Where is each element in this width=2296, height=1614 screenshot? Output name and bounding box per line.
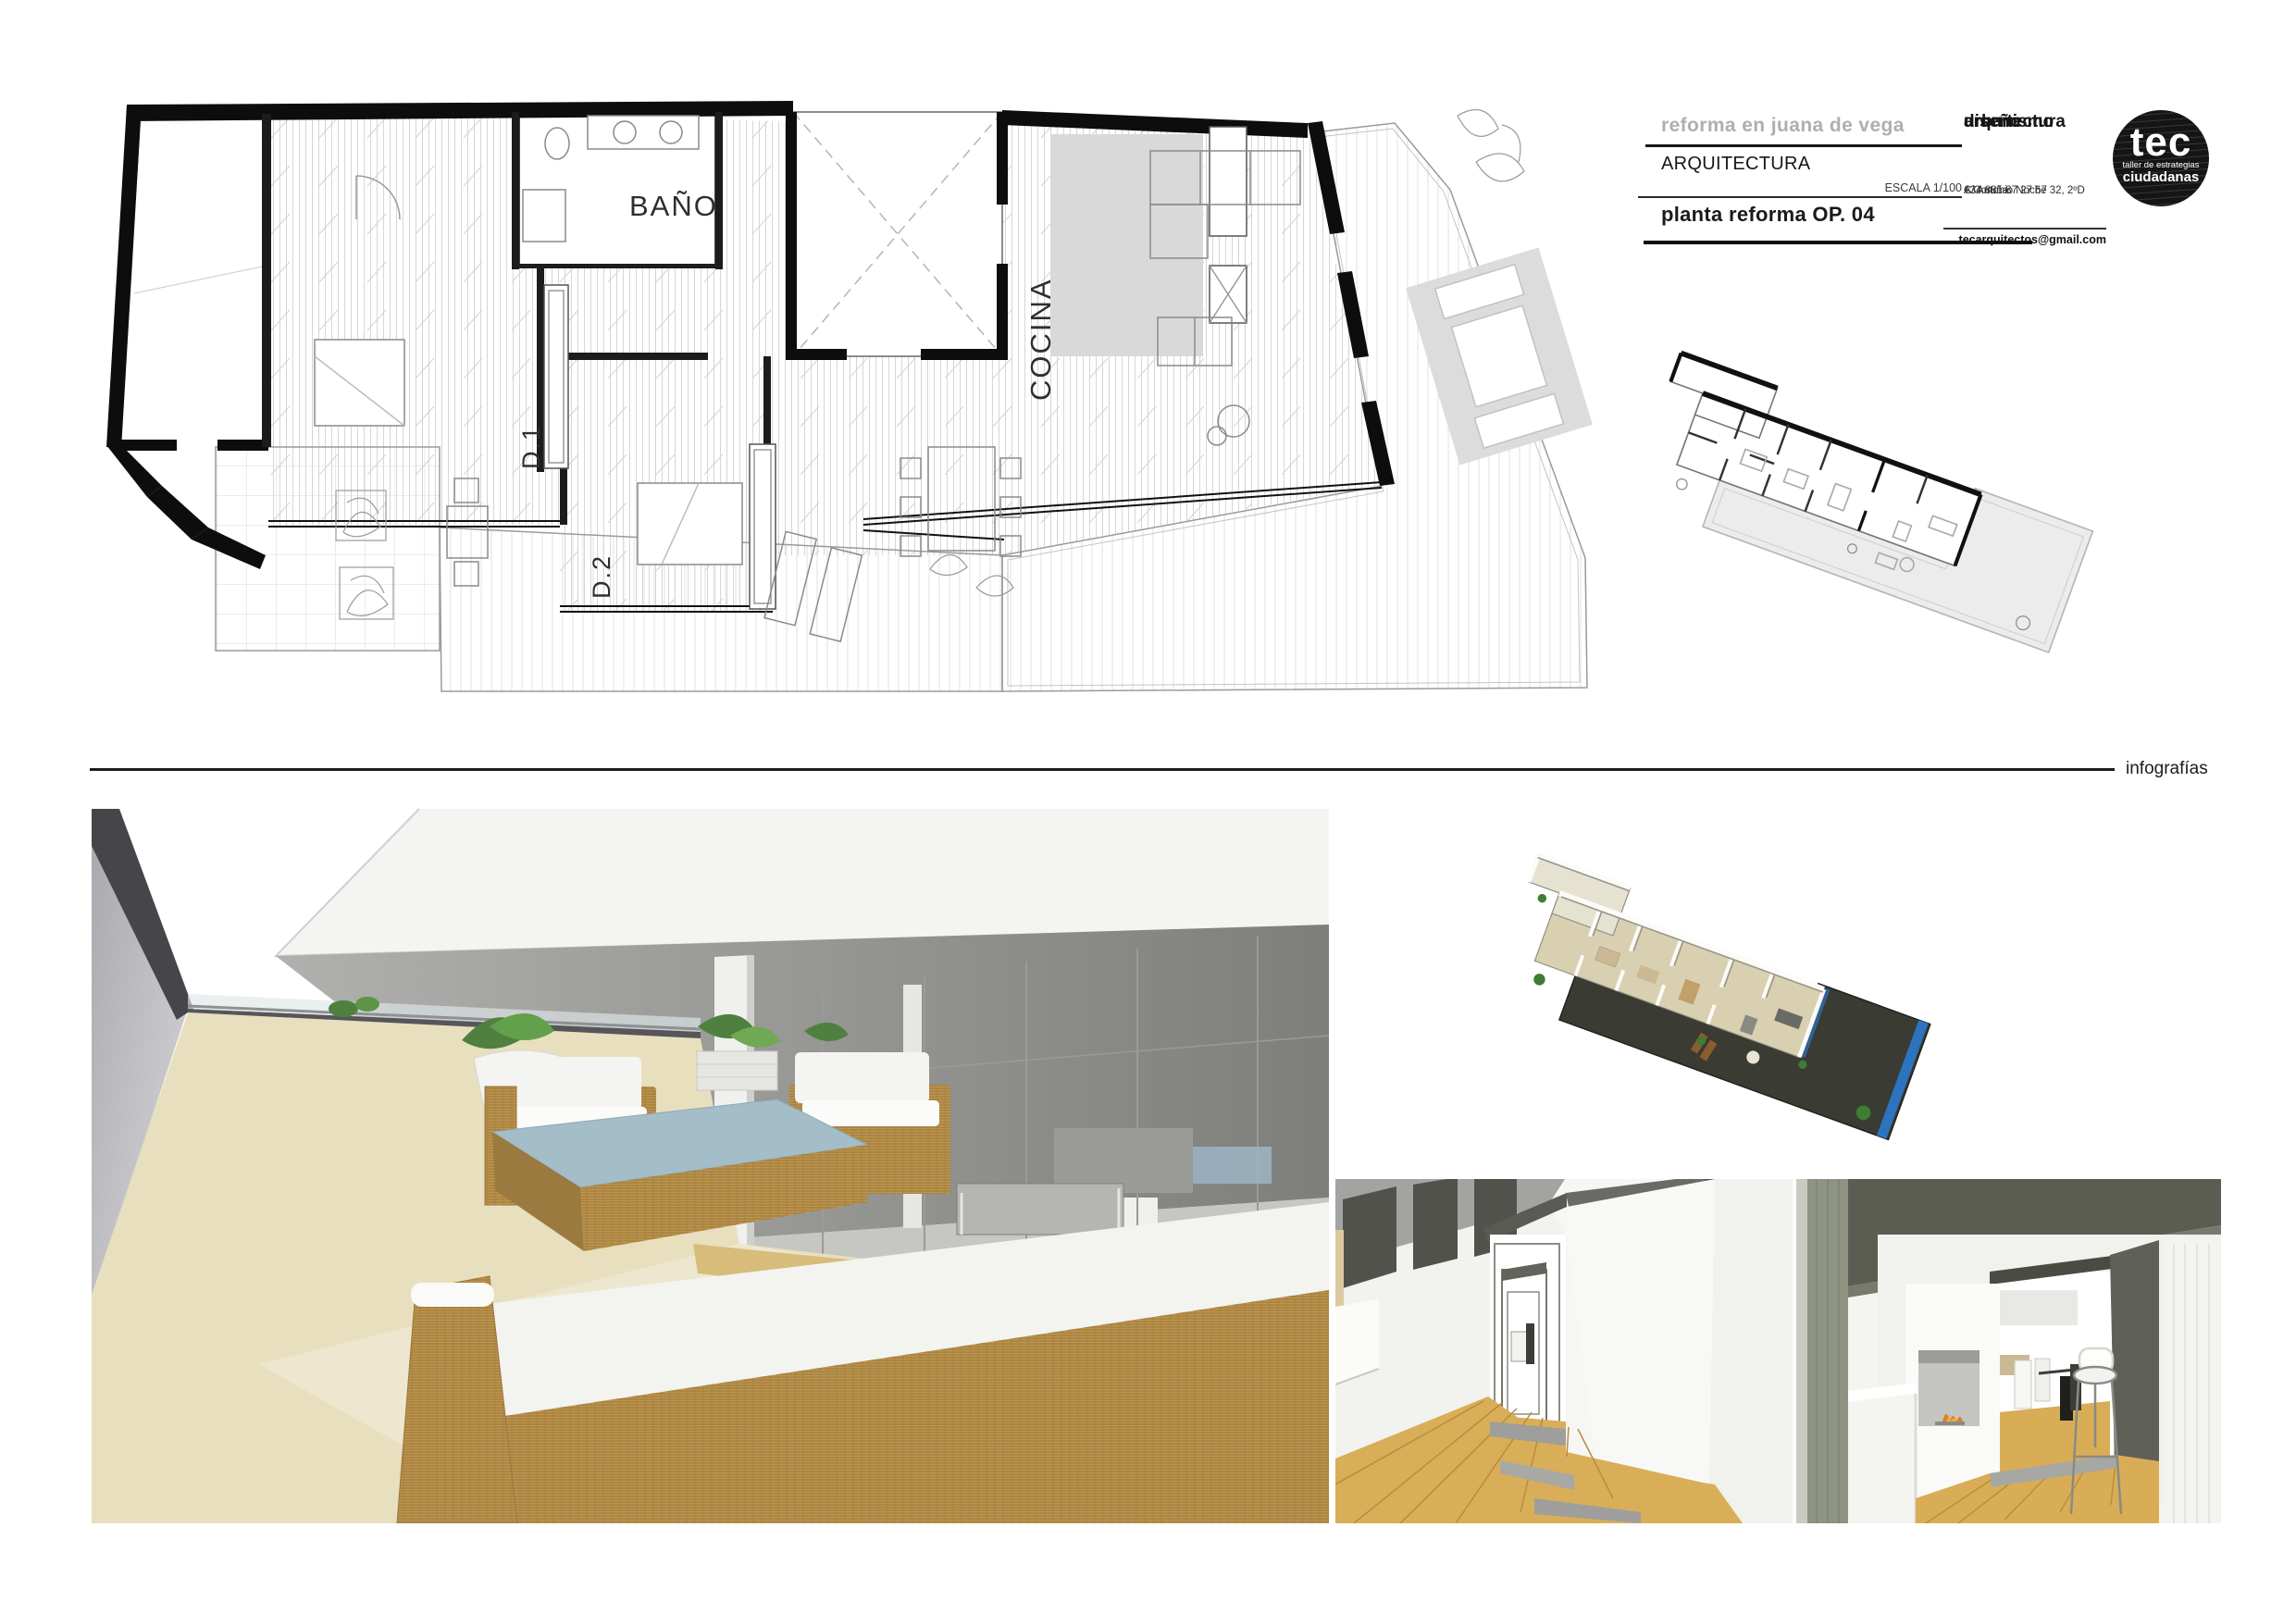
project-title: reforma en juana de vega bbox=[1661, 115, 1905, 137]
label-bedroom-2: D.2 bbox=[588, 554, 615, 599]
label-bathroom: BAÑO bbox=[629, 190, 718, 222]
render-hallway bbox=[1335, 1179, 1793, 1523]
plan-left-room bbox=[118, 112, 268, 444]
sheet-title: planta reforma OP. 04 bbox=[1661, 203, 1875, 227]
logo-tagline-2: ciudadanas bbox=[2113, 170, 2209, 184]
floor-plan-drawing: BAÑO COCINA D.1 D.2 bbox=[69, 51, 1633, 717]
title-block-rule-1 bbox=[1645, 144, 1962, 147]
section-divider-line bbox=[90, 768, 2115, 771]
green-column bbox=[1796, 1179, 1848, 1523]
section-divider-label: infografías bbox=[2126, 759, 2208, 779]
label-kitchen: COCINA bbox=[1024, 278, 1057, 401]
discipline-label: ARQUITECTURA bbox=[1661, 154, 1810, 175]
render-axonometric-color bbox=[1495, 819, 2105, 1161]
fireplace-counter bbox=[1848, 1383, 1916, 1523]
title-block-rule-2 bbox=[1638, 196, 1962, 198]
phone-number: +34 881 87 27 67 bbox=[1964, 185, 2047, 197]
render-terrace bbox=[92, 809, 1329, 1523]
presentation-sheet: BAÑO COCINA D.1 D.2 reforma en juana de … bbox=[0, 0, 2296, 1614]
render-fireplace-dining bbox=[1796, 1179, 2221, 1523]
plan-patio-skylight bbox=[793, 112, 1002, 356]
logo-name: tec bbox=[2113, 125, 2209, 159]
title-block: reforma en juana de vega ARQUITECTURA ES… bbox=[1638, 104, 2296, 256]
firm-service-3: diseño bbox=[1964, 113, 2020, 131]
scale-label: ESCALA 1/100 bbox=[1777, 181, 1962, 194]
label-bedroom-1: D.1 bbox=[517, 425, 545, 469]
axonometric-bw-drawing bbox=[1666, 268, 2221, 676]
email-address: tecarquitectos@gmail.com bbox=[1943, 228, 2106, 246]
tec-logo: tec taller de estrategias ciudadanas bbox=[2113, 110, 2209, 206]
